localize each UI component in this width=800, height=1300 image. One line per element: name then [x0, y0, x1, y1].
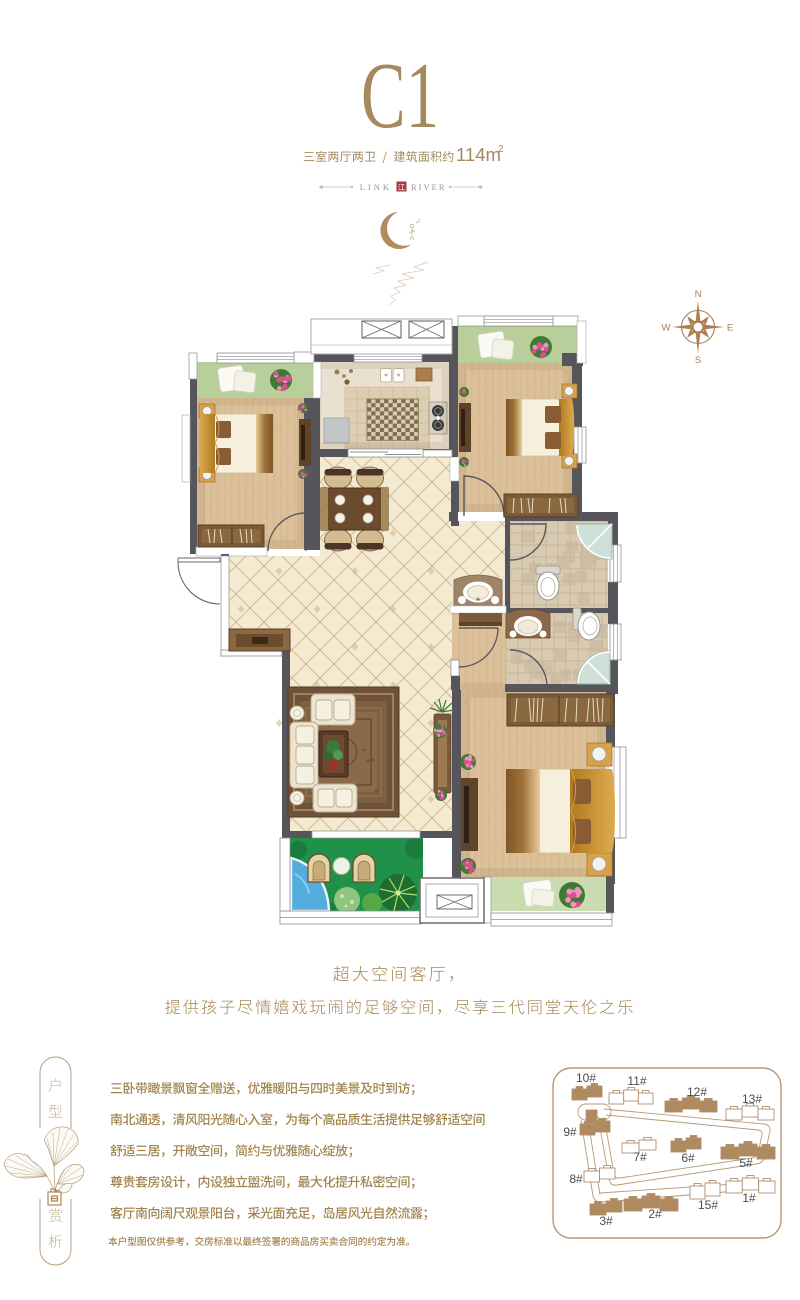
svg-text:S: S [695, 355, 701, 366]
svg-text:W: W [662, 323, 671, 334]
svg-text:2: 2 [498, 144, 504, 155]
svg-text:8#: 8# [569, 1172, 583, 1186]
svg-text:11#: 11# [627, 1074, 646, 1088]
svg-text:114m: 114m [456, 144, 501, 165]
svg-text:1#: 1# [742, 1191, 756, 1205]
svg-text:9#: 9# [563, 1125, 577, 1139]
svg-text:LINK: LINK [360, 182, 392, 192]
svg-text:7#: 7# [633, 1150, 647, 1164]
svg-text:10#: 10# [576, 1071, 596, 1085]
svg-text:2#: 2# [648, 1207, 662, 1221]
svg-text:5#: 5# [739, 1156, 753, 1170]
svg-text:RIVER: RIVER [411, 182, 447, 192]
svg-text:15#: 15# [698, 1198, 718, 1212]
svg-text:13#: 13# [742, 1092, 762, 1106]
svg-text:3#: 3# [599, 1214, 613, 1228]
svg-text:12#: 12# [687, 1085, 707, 1099]
svg-text:N: N [695, 289, 702, 300]
svg-text:E: E [727, 323, 733, 334]
svg-text:C1: C1 [361, 44, 439, 148]
svg-text:6#: 6# [681, 1151, 695, 1165]
